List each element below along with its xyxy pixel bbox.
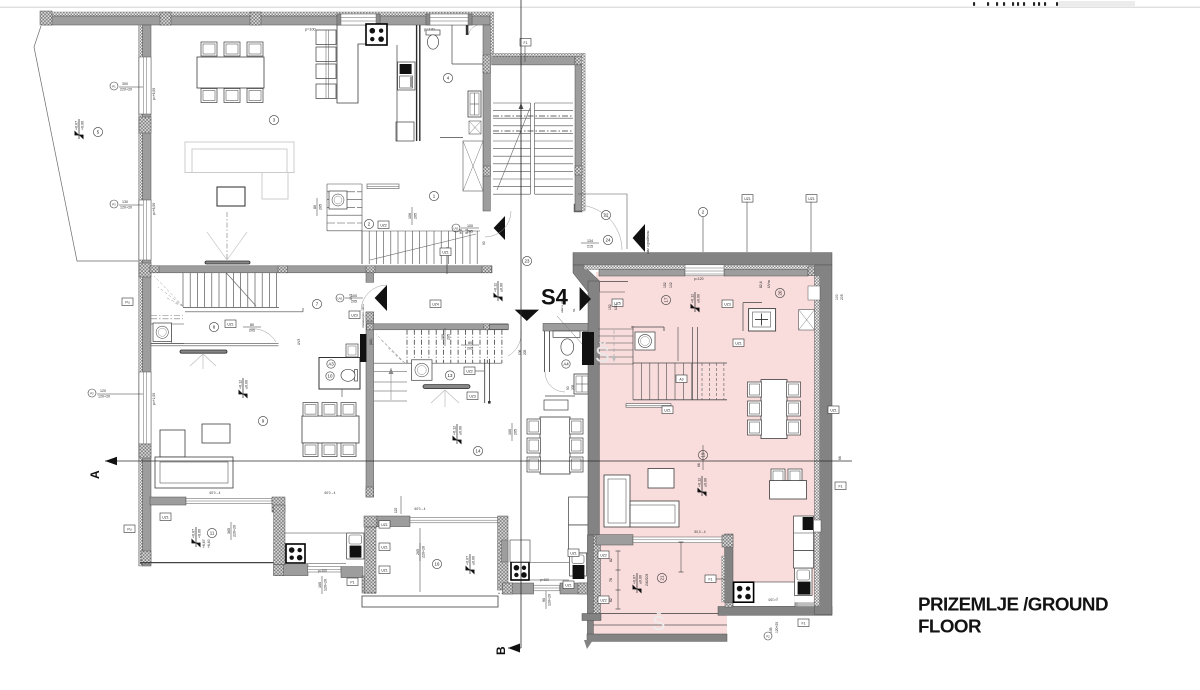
- svg-text:152: 152: [663, 282, 667, 288]
- svg-text:UZ1: UZ1: [381, 568, 388, 572]
- svg-text:±0,00: ±0,00: [697, 294, 701, 303]
- svg-text:A3: A3: [328, 362, 334, 367]
- svg-text:100: 100: [467, 224, 473, 228]
- svg-text:120+20: 120+20: [98, 395, 110, 399]
- svg-text:100: 100: [835, 294, 839, 300]
- svg-text:UZ3: UZ3: [469, 394, 476, 398]
- svg-text:215: 215: [587, 244, 593, 248]
- svg-text:Pu: Pu: [127, 527, 131, 531]
- svg-text:+6,60: +6,60: [198, 529, 202, 538]
- svg-text:UZ3: UZ3: [724, 302, 731, 306]
- svg-text:165: 165: [318, 582, 322, 588]
- svg-text:20: 20: [778, 290, 783, 295]
- svg-text:50,0→4: 50,0→4: [694, 530, 705, 534]
- svg-text:Pu: Pu: [125, 300, 129, 304]
- svg-text:UV1: UV1: [337, 297, 343, 301]
- svg-text:11: 11: [210, 531, 215, 536]
- svg-text:ulaz u građevinu: ulaz u građevinu: [646, 230, 650, 254]
- svg-text:+6,00: +6,00: [81, 121, 85, 130]
- svg-text:UZ1: UZ1: [808, 197, 815, 201]
- svg-text:240/205: 240/205: [645, 574, 649, 586]
- svg-text:UZ2: UZ2: [380, 223, 387, 227]
- svg-text:UZ1: UZ1: [442, 250, 449, 254]
- svg-text:P2: P2: [90, 392, 94, 396]
- svg-text:205: 205: [249, 328, 255, 332]
- svg-text:120+20: 120+20: [323, 579, 327, 591]
- svg-text:365: 365: [227, 528, 231, 534]
- svg-text:UZ2: UZ2: [466, 369, 473, 373]
- svg-text:90: 90: [542, 598, 546, 602]
- svg-text:90: 90: [566, 386, 570, 390]
- svg-text:205: 205: [467, 346, 473, 350]
- svg-text:+6,67: +6,67: [202, 539, 206, 548]
- svg-text:S1: S1: [572, 308, 576, 312]
- svg-text:p=100: p=100: [540, 578, 549, 582]
- svg-text:106: 106: [408, 213, 412, 219]
- svg-text:78: 78: [609, 578, 613, 582]
- svg-text:±0,00: ±0,00: [459, 426, 463, 435]
- svg-text:130: 130: [122, 200, 128, 204]
- svg-text:205: 205: [513, 429, 517, 435]
- svg-text:F1: F1: [524, 41, 528, 45]
- svg-text:B: B: [494, 646, 508, 655]
- svg-text:A4: A4: [563, 362, 569, 367]
- svg-text:PRIZEMLJE /GROUND: PRIZEMLJE /GROUND: [918, 594, 1108, 615]
- svg-text:+6,12: +6,12: [239, 380, 243, 389]
- svg-text:instalacijsko okno: instalacijsko okno: [361, 304, 365, 328]
- svg-text:100: 100: [441, 334, 445, 340]
- svg-text:+6,12: +6,12: [698, 478, 702, 487]
- svg-text:UZ1: UZ1: [830, 408, 837, 412]
- svg-text:122: 122: [394, 507, 398, 513]
- svg-text:UZ1: UZ1: [162, 515, 169, 519]
- svg-text:p=+1,00: p=+1,00: [152, 393, 156, 405]
- svg-text:90: 90: [482, 241, 486, 245]
- svg-text:p=100: p=100: [318, 569, 327, 573]
- svg-text:UZ1: UZ1: [381, 523, 388, 527]
- svg-text:82: 82: [609, 598, 613, 602]
- svg-text:220+20: 220+20: [232, 525, 236, 537]
- svg-text:82: 82: [609, 558, 613, 562]
- svg-text:66: 66: [697, 463, 701, 467]
- svg-text:Š: Š: [652, 612, 665, 635]
- svg-text:23: 23: [525, 259, 530, 264]
- svg-text:21: 21: [660, 575, 665, 580]
- svg-text:120: 120: [100, 389, 106, 393]
- svg-text:220+20: 220+20: [421, 546, 425, 558]
- svg-text:80: 80: [468, 341, 472, 345]
- svg-text:120+20: 120+20: [775, 622, 779, 633]
- svg-text:80: 80: [250, 323, 254, 327]
- svg-text:60'0→4: 60'0→4: [210, 491, 221, 495]
- svg-text:+6,60: +6,60: [207, 539, 211, 548]
- svg-text:152: 152: [608, 304, 612, 310]
- svg-text:22: 22: [604, 213, 609, 218]
- svg-text:±0,00: ±0,00: [639, 575, 643, 584]
- svg-text:106: 106: [518, 349, 522, 355]
- svg-text:60'0→4: 60'0→4: [325, 491, 336, 495]
- svg-text:60'0→4: 60'0→4: [415, 507, 426, 511]
- svg-text:+6,12: +6,12: [494, 283, 498, 292]
- svg-text:P2: P2: [766, 635, 770, 639]
- svg-text:±0,00: ±0,00: [704, 478, 708, 487]
- svg-text:p=120: p=120: [694, 277, 704, 281]
- svg-text:17: 17: [664, 297, 669, 302]
- svg-text:FLOOR: FLOOR: [918, 616, 982, 637]
- svg-text:UV3: UV3: [297, 339, 301, 345]
- svg-text:220+20: 220+20: [120, 88, 132, 92]
- svg-text:UZ3: UZ3: [351, 313, 358, 317]
- svg-text:102: 102: [669, 282, 673, 288]
- svg-text:UZ1: UZ1: [664, 408, 671, 412]
- svg-text:UZ1: UZ1: [565, 583, 572, 587]
- svg-text:UZ1: UZ1: [744, 197, 751, 201]
- svg-text:UZ1: UZ1: [381, 545, 388, 549]
- svg-text:+0,07: +0,07: [466, 556, 470, 565]
- svg-text:p=100: p=100: [768, 598, 777, 602]
- svg-text:120+20: 120+20: [547, 594, 551, 606]
- svg-text:UZ1: UZ1: [614, 303, 618, 310]
- svg-text:UZ1: UZ1: [735, 341, 742, 345]
- svg-text:UV2: UV2: [349, 294, 353, 300]
- svg-text:13: 13: [448, 373, 453, 378]
- svg-text:+6,12: +6,12: [691, 294, 695, 303]
- svg-text:UZ4: UZ4: [432, 302, 439, 306]
- svg-text:UVm: UVm: [767, 280, 771, 288]
- svg-text:P1: P1: [350, 580, 354, 584]
- svg-text:265: 265: [413, 213, 417, 219]
- svg-text:14: 14: [476, 449, 481, 454]
- svg-text:82,6: 82,6: [759, 281, 763, 288]
- svg-text:205: 205: [318, 204, 322, 210]
- svg-text:F1: F1: [839, 484, 843, 488]
- svg-text:+0,07: +0,07: [633, 575, 637, 584]
- svg-text:300: 300: [122, 82, 128, 86]
- svg-text:UZ1: UZ1: [227, 322, 234, 326]
- svg-text:120+20: 120+20: [120, 206, 132, 210]
- svg-text:P1: P1: [112, 85, 116, 89]
- svg-text:(AA): (AA): [369, 339, 373, 345]
- svg-text:205: 205: [840, 294, 844, 300]
- svg-text:A3: A3: [679, 377, 683, 381]
- svg-text:UZ1: UZ1: [570, 551, 577, 555]
- svg-text:+6,67: +6,67: [192, 529, 196, 538]
- svg-text:p=+6,00: p=+6,00: [152, 88, 156, 100]
- svg-text:HVl: HVl: [459, 229, 463, 234]
- svg-text:F1: F1: [802, 621, 806, 625]
- svg-text:UZ2: UZ2: [600, 598, 607, 602]
- svg-text:24: 24: [606, 238, 611, 243]
- svg-text:p=100: p=100: [305, 28, 316, 32]
- svg-text:A: A: [88, 470, 102, 479]
- svg-text:R,S: R,S: [465, 229, 469, 234]
- svg-text:66: 66: [838, 456, 842, 460]
- svg-text:S4: S4: [541, 285, 569, 310]
- svg-text:205: 205: [523, 349, 527, 355]
- svg-text:10: 10: [328, 374, 333, 379]
- svg-text:p=+6,00: p=+6,00: [152, 203, 156, 215]
- svg-text:134: 134: [587, 239, 593, 243]
- svg-text:265: 265: [416, 549, 420, 555]
- svg-text:80: 80: [313, 205, 317, 209]
- svg-text:±0,00: ±0,00: [472, 556, 476, 565]
- svg-text:±0,00: ±0,00: [500, 283, 504, 292]
- svg-text:+6,12: +6,12: [453, 426, 457, 435]
- svg-text:±0,00: ±0,00: [245, 380, 249, 389]
- svg-text:16: 16: [435, 562, 440, 567]
- svg-text:+6,07: +6,07: [75, 121, 79, 130]
- svg-text:P3: P3: [112, 203, 116, 207]
- svg-text:100: 100: [508, 429, 512, 435]
- svg-text:Š: Š: [595, 342, 610, 367]
- svg-text:UZ2: UZ2: [600, 553, 607, 557]
- svg-text:205: 205: [446, 334, 450, 340]
- svg-text:F1: F1: [709, 577, 713, 581]
